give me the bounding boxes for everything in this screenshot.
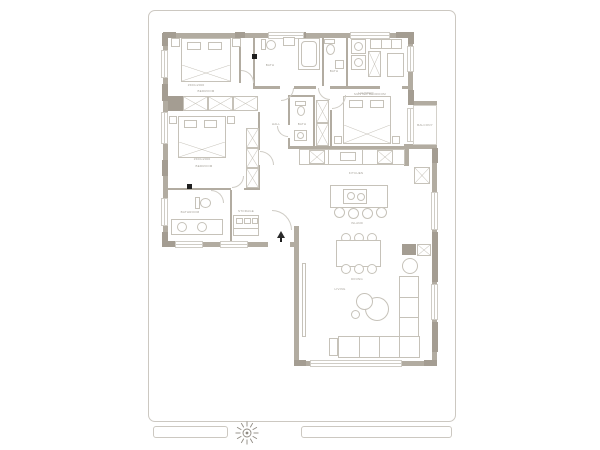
partition-bath-bottom-4 bbox=[402, 86, 410, 89]
counter-line bbox=[328, 150, 329, 164]
toilet-bowl bbox=[297, 106, 305, 116]
column bbox=[163, 241, 175, 247]
toilet-bowl bbox=[326, 44, 335, 55]
bed bbox=[178, 116, 226, 158]
sofa-line bbox=[379, 337, 380, 357]
washbasin bbox=[335, 60, 344, 69]
side-table bbox=[329, 338, 338, 356]
pillow bbox=[187, 42, 201, 50]
entry-arrow-icon bbox=[277, 231, 285, 238]
nightstand bbox=[232, 38, 241, 47]
nightstand bbox=[392, 136, 400, 144]
door-sensor-icon bbox=[252, 54, 257, 59]
window bbox=[407, 46, 414, 72]
sofa-right bbox=[399, 276, 419, 337]
blanket-fold bbox=[179, 142, 225, 157]
island-label: ISLAND bbox=[351, 222, 363, 225]
column bbox=[408, 32, 414, 44]
coffee-table bbox=[351, 310, 360, 319]
toilet-bowl bbox=[200, 198, 211, 208]
site-pad-right bbox=[301, 426, 452, 438]
column bbox=[424, 360, 437, 366]
storage-shelf bbox=[233, 215, 259, 236]
toilet-bowl bbox=[266, 40, 276, 50]
sofa-line bbox=[399, 337, 400, 357]
window bbox=[310, 360, 402, 367]
window bbox=[161, 50, 168, 78]
kitchen-cabinet bbox=[377, 150, 393, 164]
site-pad-left bbox=[153, 426, 228, 438]
shelf-line bbox=[234, 228, 258, 229]
blanket-fold bbox=[182, 65, 230, 81]
washer-drum bbox=[354, 42, 363, 51]
window bbox=[220, 241, 248, 248]
kitchen-cabinet bbox=[309, 150, 325, 164]
lounge-chair bbox=[402, 258, 418, 274]
partition-bath3-left-a bbox=[288, 95, 290, 125]
wardrobe bbox=[246, 148, 259, 168]
kitchen-sink bbox=[340, 152, 356, 161]
nightstand bbox=[171, 38, 180, 47]
sofa-line bbox=[359, 337, 360, 357]
sink-basin bbox=[197, 222, 207, 232]
tub-inner bbox=[301, 41, 317, 67]
partition-bath3-top bbox=[288, 95, 315, 97]
column bbox=[294, 360, 306, 366]
living-label: LIVING bbox=[334, 288, 345, 291]
laundry-cabinet bbox=[368, 51, 381, 77]
partition-bath1-right bbox=[322, 37, 324, 86]
compass-rose-icon bbox=[234, 420, 260, 446]
window bbox=[175, 241, 203, 248]
shelf-box bbox=[236, 218, 243, 224]
washbasin bbox=[283, 37, 295, 46]
bar-stool bbox=[376, 207, 387, 218]
window bbox=[431, 284, 438, 320]
partition-bath-bottom-1 bbox=[253, 86, 280, 89]
partition-bath3-right bbox=[313, 95, 315, 148]
bed bbox=[181, 38, 231, 82]
burner bbox=[357, 193, 365, 201]
shelf-box bbox=[252, 218, 258, 224]
washbasin bbox=[294, 130, 307, 141]
dining-chair bbox=[367, 264, 377, 274]
column bbox=[408, 90, 414, 105]
nightstand bbox=[334, 136, 342, 144]
window bbox=[161, 112, 168, 144]
column bbox=[432, 322, 438, 352]
wardrobe bbox=[246, 168, 259, 188]
kitchen-label: KITCHEN bbox=[349, 172, 364, 175]
basin-bowl bbox=[297, 132, 304, 139]
window bbox=[350, 32, 390, 39]
bedroom1-label: BEDROOM bbox=[198, 90, 215, 93]
tv-console bbox=[302, 263, 306, 337]
dryer-drum bbox=[354, 58, 363, 67]
dining-chair bbox=[341, 264, 351, 274]
column bbox=[432, 232, 438, 282]
partition-study-top-a bbox=[167, 188, 231, 190]
partition-bath2-right bbox=[346, 37, 348, 86]
sofa-line bbox=[400, 297, 418, 298]
bath3-label: BATH bbox=[298, 123, 307, 126]
partition-master-left bbox=[330, 110, 332, 148]
column bbox=[432, 148, 438, 163]
shelf-box bbox=[244, 218, 251, 224]
bed-master bbox=[343, 96, 391, 144]
floor-plan-canvas: BALCONY 1500x2000 BEDROOM 1500x2000 BEDR… bbox=[0, 0, 600, 450]
pillow bbox=[184, 120, 197, 128]
balcony-label: BALCONY bbox=[417, 124, 433, 127]
shelf-line bbox=[381, 40, 382, 48]
nightstand bbox=[227, 116, 235, 124]
column bbox=[162, 160, 168, 176]
window bbox=[161, 198, 168, 226]
dining-label: DINING bbox=[351, 278, 363, 281]
wall-living-left bbox=[294, 226, 299, 366]
dining-chair bbox=[354, 264, 364, 274]
bar-stool bbox=[334, 207, 345, 218]
partition-study-top-b bbox=[244, 188, 260, 190]
shower-tub bbox=[298, 38, 320, 70]
bar-stool bbox=[362, 208, 373, 219]
dining-table bbox=[336, 240, 381, 267]
sofa-bottom bbox=[338, 336, 420, 358]
nightstand bbox=[169, 116, 177, 124]
tall-cabinet bbox=[414, 167, 430, 184]
pillow bbox=[370, 100, 384, 108]
bath1-label: BATH bbox=[266, 64, 275, 67]
wardrobe bbox=[208, 96, 233, 111]
window bbox=[431, 192, 438, 230]
partition-bath-bottom-2 bbox=[294, 86, 316, 89]
bathroom-label: BATHROOM bbox=[181, 211, 200, 214]
bar-stool bbox=[348, 208, 359, 219]
bedroom1-size-label: 1500x2000 bbox=[188, 84, 205, 87]
burner bbox=[347, 192, 355, 200]
pillow bbox=[349, 100, 363, 108]
hall-closet bbox=[316, 100, 329, 123]
wardrobe bbox=[233, 96, 258, 111]
master-label: MASTER BEDROOM bbox=[354, 93, 386, 96]
bedroom2-label: BEDROOM bbox=[196, 165, 213, 168]
sink-basin bbox=[177, 222, 187, 232]
coffee-table bbox=[356, 293, 373, 310]
entry-arrow-stem bbox=[280, 238, 282, 242]
partition-bath-bottom-3 bbox=[330, 86, 380, 89]
storage-label: STORAGE bbox=[238, 210, 254, 213]
wardrobe bbox=[183, 96, 208, 111]
bedroom2-size-label: 1500x2000 bbox=[194, 158, 211, 161]
camera-icon bbox=[187, 184, 192, 189]
blanket-fold bbox=[344, 125, 390, 143]
tall-unit bbox=[387, 53, 404, 77]
bath2-label: BATH bbox=[330, 70, 339, 73]
laundry-shelf bbox=[370, 39, 402, 49]
hall-closet bbox=[316, 123, 329, 146]
wardrobe bbox=[246, 128, 259, 148]
sofa-line bbox=[400, 317, 418, 318]
partition-storage-left bbox=[230, 190, 232, 242]
side-cabinet bbox=[417, 244, 431, 256]
counter-line bbox=[362, 150, 363, 164]
shelf-line bbox=[391, 40, 392, 48]
pillow bbox=[208, 42, 222, 50]
ac-unit bbox=[402, 244, 416, 255]
duct-block bbox=[168, 96, 183, 111]
pillow bbox=[204, 120, 217, 128]
